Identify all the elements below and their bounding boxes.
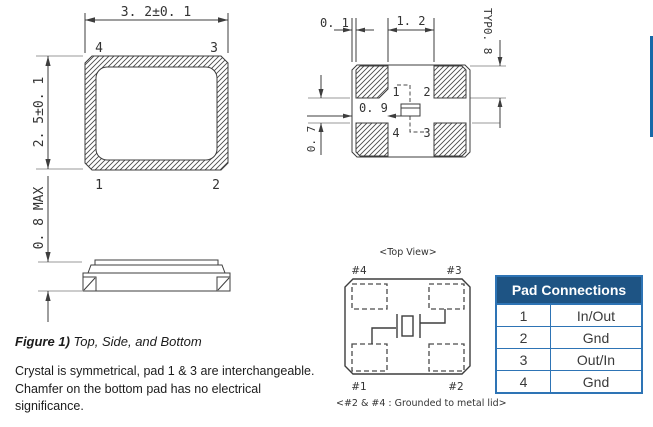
side-lid [88, 265, 225, 273]
dim-pad-gap-label: 1. 2 [397, 14, 426, 28]
schematic-pad-area-4 [352, 284, 387, 309]
schematic-top-view: <Top View> #4 #3 #1 #2 <#2 & #4 : Ground… [336, 247, 507, 409]
figure-caption: Figure 1) Top, Side, and Bottom [15, 334, 202, 349]
schematic-outline [345, 279, 470, 374]
dim-edge-gap-label: 0. 1 [320, 16, 349, 30]
figure-caption-label: Figure 1) [15, 334, 70, 349]
bottom-view-drawing: 0. 1 1. 2 TYP0. 8 0. 7 0. 9 [305, 8, 506, 157]
schematic-pad-area-3 [429, 284, 464, 309]
dim-height-label: 2. 5±0. 1 [32, 77, 47, 147]
bottom-pad-label-2: 2 [423, 85, 430, 99]
note-line-2: Chamfer on the bottom pad has no electri… [15, 381, 314, 399]
table-row: 3 Out/In [496, 349, 642, 371]
schematic-pad-4: #4 [351, 265, 367, 277]
schematic-pad-area-2 [429, 344, 464, 371]
schematic-pad-3: #3 [446, 265, 461, 277]
bottom-pad-1 [356, 66, 388, 98]
pad-number-cell: 4 [496, 371, 551, 394]
top-view-drawing: 3. 2±0. 1 2. 5±0. 1 4 3 1 2 [32, 5, 228, 193]
pad-label-1: 1 [95, 178, 103, 193]
datasheet-figure-page: 3. 2±0. 1 2. 5±0. 1 4 3 1 2 0. 8 MAX [0, 0, 653, 427]
pad-number-cell: 3 [496, 349, 551, 371]
schematic-title: <Top View> [379, 247, 437, 258]
dim-pad-size-label: TYP0. 8 [481, 8, 494, 54]
pad-connection-cell: In/Out [551, 304, 643, 327]
pad-label-4: 4 [95, 41, 103, 56]
figure-caption-text: Top, Side, and Bottom [70, 334, 202, 349]
side-view-drawing: 0. 8 MAX [32, 176, 230, 322]
pad-number-cell: 1 [496, 304, 551, 327]
crystal-symbol [372, 309, 445, 344]
side-body [83, 273, 230, 291]
schematic-pad-2: #2 [448, 381, 463, 393]
dim-row-gap-label: 0. 7 [305, 126, 318, 153]
package-cavity [96, 67, 217, 160]
bottom-pad-3 [434, 123, 466, 156]
schematic-ground-note: <#2 & #4 : Grounded to metal lid> [336, 398, 507, 409]
bottom-pad-label-3: 3 [423, 126, 430, 140]
table-row: 2 Gnd [496, 327, 642, 349]
note-line-3: significance. [15, 398, 314, 416]
figure-notes: Crystal is symmetrical, pad 1 & 3 are in… [15, 363, 314, 416]
pad-table-title: Pad Connections [496, 276, 642, 304]
table-row: 1 In/Out [496, 304, 642, 327]
pad-connections-table: Pad Connections 1 In/Out 2 Gnd 3 Out/In … [495, 275, 643, 394]
dim-thickness-label: 0. 8 MAX [32, 187, 47, 250]
bottom-pad-4 [356, 123, 388, 156]
side-top-plate [95, 260, 218, 265]
note-line-1: Crystal is symmetrical, pad 1 & 3 are in… [15, 363, 314, 381]
center-mount-pad [401, 104, 420, 116]
bottom-pad-label-1: 1 [392, 85, 399, 99]
schematic-pad-1: #1 [351, 381, 366, 393]
bottom-pad-2 [434, 66, 466, 98]
pad-connection-cell: Gnd [551, 371, 643, 394]
pad-number-cell: 2 [496, 327, 551, 349]
table-row: 4 Gnd [496, 371, 642, 394]
dim-width-label: 3. 2±0. 1 [121, 5, 191, 20]
pad-label-2: 2 [212, 178, 220, 193]
bottom-pad-label-4: 4 [392, 126, 399, 140]
schematic-pad-area-1 [352, 344, 387, 371]
dim-center-label: 0. 9 [359, 101, 388, 115]
pad-connection-cell: Gnd [551, 327, 643, 349]
pad-label-3: 3 [210, 41, 218, 56]
pad-connection-cell: Out/In [551, 349, 643, 371]
